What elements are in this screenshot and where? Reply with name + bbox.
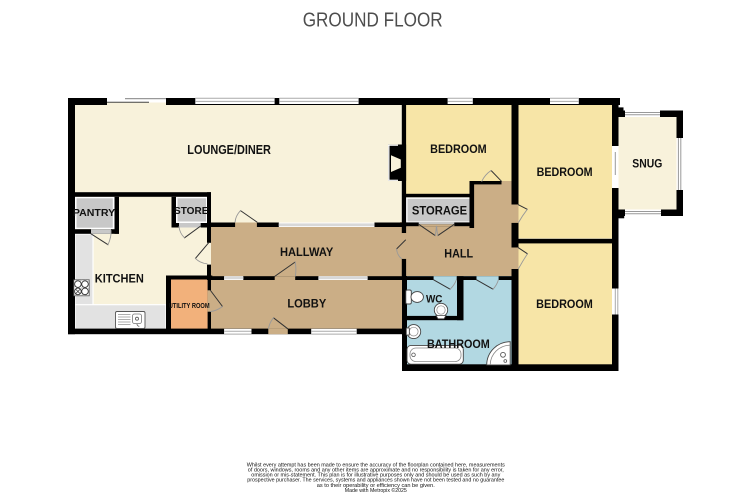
svg-text:WC: WC	[426, 294, 443, 306]
svg-text:STORE: STORE	[174, 206, 209, 217]
svg-text:LOBBY: LOBBY	[287, 297, 326, 311]
svg-text:PANTRY: PANTRY	[73, 208, 116, 219]
svg-text:UTILITY ROOM: UTILITY ROOM	[169, 303, 210, 310]
svg-text:BEDROOM: BEDROOM	[430, 142, 487, 156]
svg-text:Made with Metropix ©2025: Made with Metropix ©2025	[345, 487, 407, 494]
svg-text:LOUNGE/DINER: LOUNGE/DINER	[187, 142, 271, 157]
svg-text:STORAGE: STORAGE	[412, 204, 467, 218]
svg-text:BATHROOM: BATHROOM	[427, 337, 490, 351]
svg-text:SNUG: SNUG	[632, 157, 662, 171]
svg-text:GROUND FLOOR: GROUND FLOOR	[303, 10, 443, 32]
svg-text:HALLWAY: HALLWAY	[280, 245, 333, 259]
svg-text:HALL: HALL	[444, 247, 473, 261]
svg-text:KITCHEN: KITCHEN	[95, 271, 144, 285]
svg-text:BEDROOM: BEDROOM	[536, 297, 593, 311]
svg-text:BEDROOM: BEDROOM	[537, 165, 593, 179]
